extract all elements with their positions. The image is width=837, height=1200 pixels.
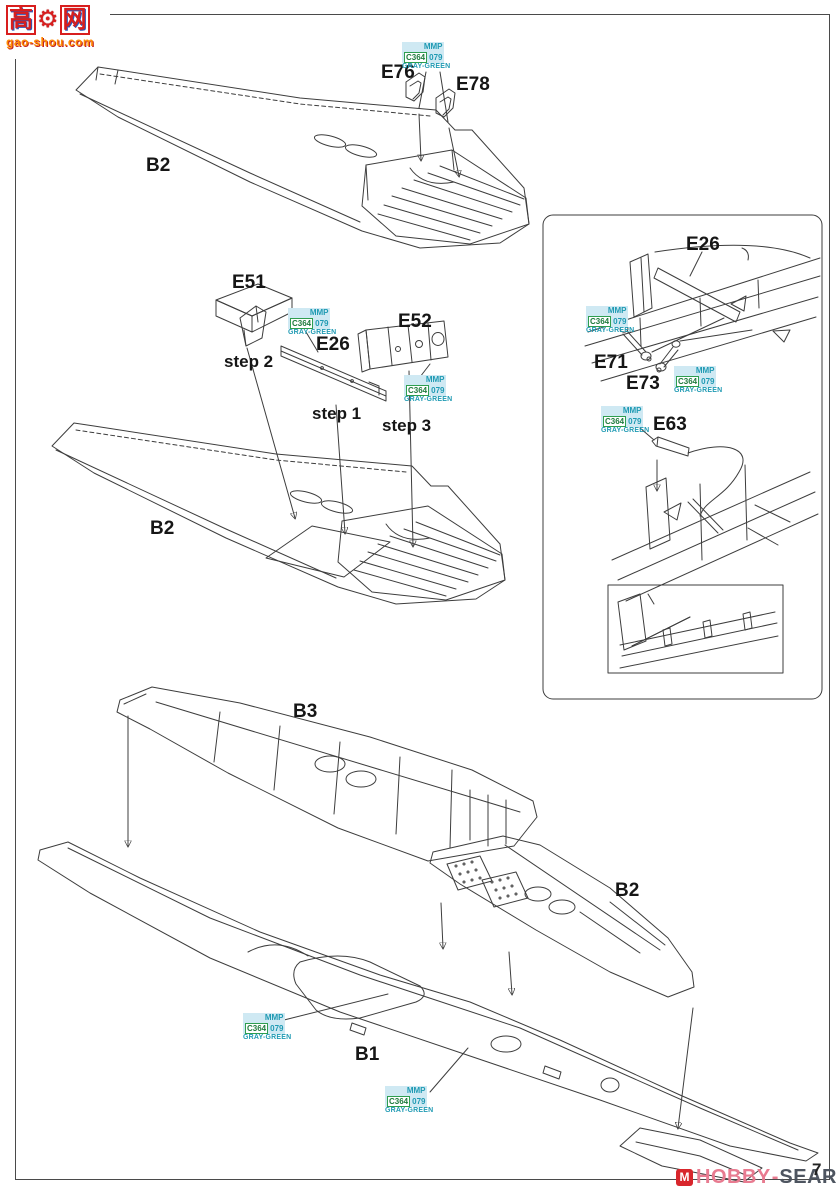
part-b2-bottom-drawing [430,836,694,997]
panel-floor-detail-lower [612,465,818,601]
paint-callout-e76-e78: MMP C364079 GRAY-GREEN [402,42,450,71]
paint-callout-e52: MMP C364079 GRAY-GREEN [404,375,452,404]
paint-callout-e63: MMP C364079 GRAY-GREEN [601,406,649,435]
paint-callout-b1-right: MMP C364079 GRAY-GREEN [385,1086,433,1115]
label-step-3: step 3 [382,416,431,436]
label-step-1: step 1 [312,404,361,424]
detail-panel [543,215,822,699]
logo-char-left: 高 [6,5,36,35]
hobby-search-text1: HOBBY [696,1166,771,1189]
label-b2-bottom: B2 [615,880,639,902]
label-b2-top: B2 [146,155,170,177]
part-b3-drawing [117,687,537,861]
label-e51: E51 [232,272,266,294]
diagram-mid-wing-b2 [52,284,505,604]
paint-callout-e73: MMP C364079 GRAY-GREEN [674,366,722,395]
paint-callout-e71: MMP C364079 GRAY-GREEN [586,306,634,335]
hobby-search-dash: - [772,1166,779,1189]
label-e26-mid: E26 [316,334,350,356]
label-e52: E52 [398,311,432,333]
label-b2-mid: B2 [150,518,174,540]
instruction-page: { "page": { "number": "7" }, "watermark_… [0,0,837,1200]
label-e63: E63 [653,414,687,436]
label-b3: B3 [293,701,317,723]
paint-callout-e51-e26: MMP C364079 GRAY-GREEN [288,308,336,337]
gao-shou-watermark: 高 ⚙ 网 gao-shou.com [6,5,110,59]
assembly-drawings [0,0,837,1200]
label-b1: B1 [355,1044,379,1066]
hobby-search-icon: M [676,1169,693,1186]
label-e78: E78 [456,74,490,96]
gear-icon: ⚙ [37,8,59,32]
logo-url: gao-shou.com [6,35,110,49]
label-e71: E71 [594,352,628,374]
label-e26-panel: E26 [686,234,720,256]
part-b1-drawing [38,842,818,1182]
label-step-2: step 2 [224,352,273,372]
panel-inset-box [608,585,783,673]
logo-char-right: 网 [60,5,90,35]
glue-area-highlight [266,526,390,577]
hobby-search-text2: SEARCH [779,1166,837,1189]
page-number: 7 [812,1160,821,1180]
part-e63-drawing [640,428,743,516]
label-e73: E73 [626,373,660,395]
paint-callout-b1-left: MMP C364079 GRAY-GREEN [243,1013,291,1042]
